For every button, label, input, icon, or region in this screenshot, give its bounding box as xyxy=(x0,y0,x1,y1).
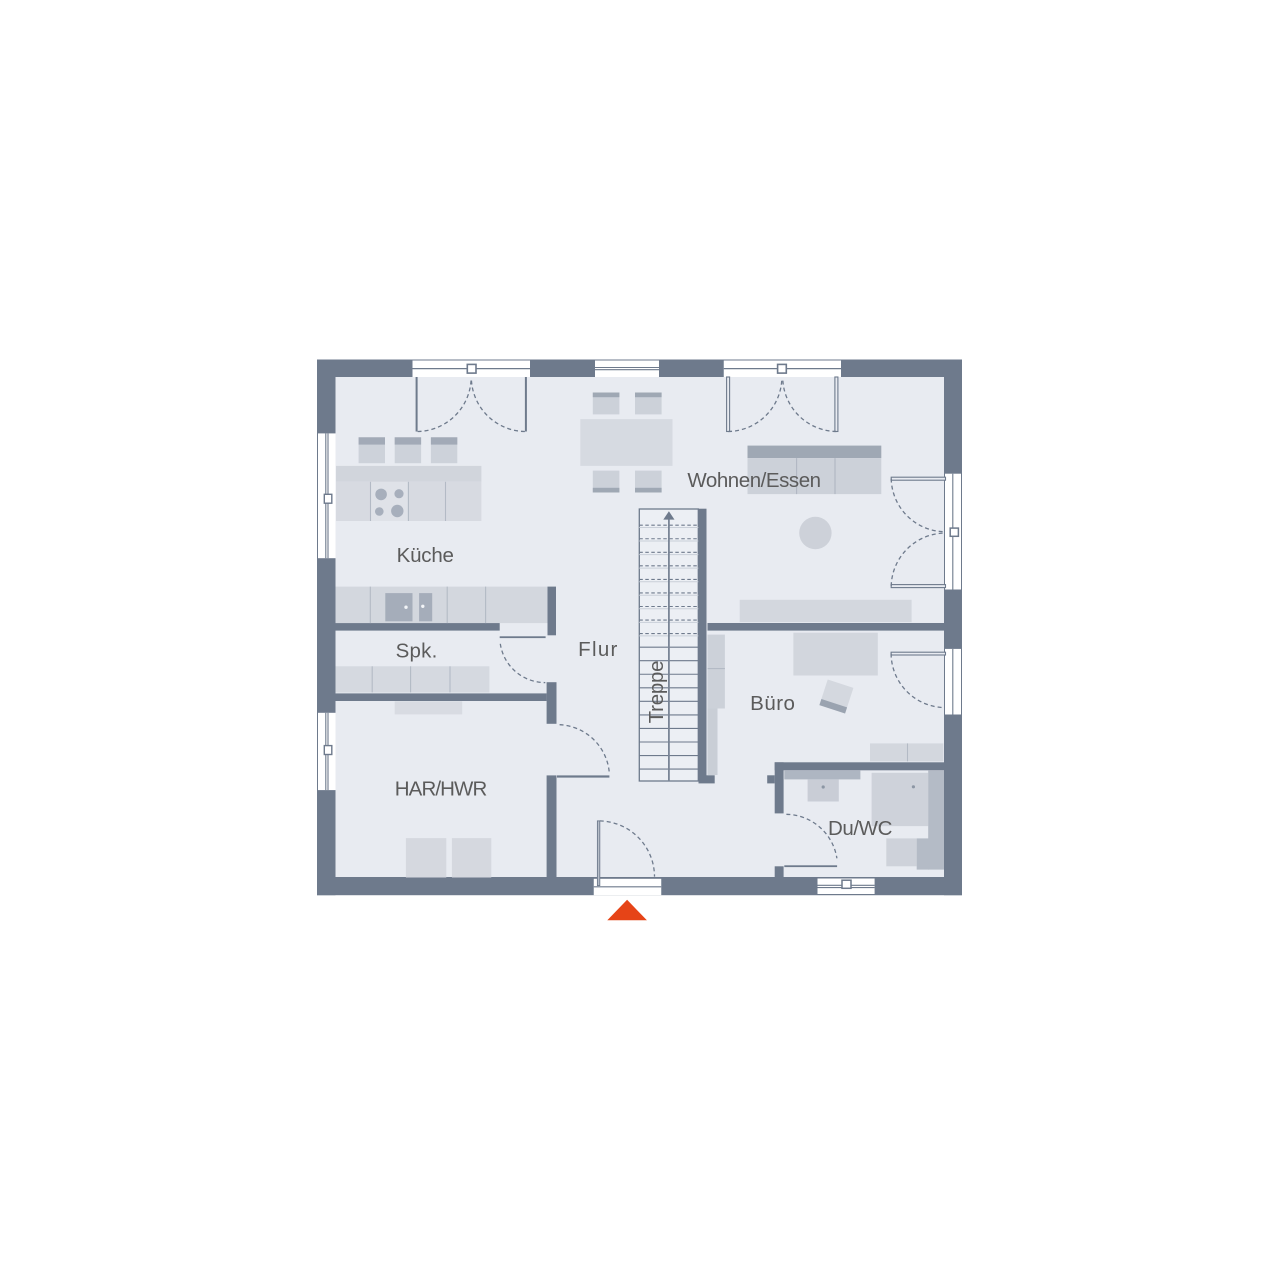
svg-text:Treppe: Treppe xyxy=(645,661,668,724)
svg-text:Wohnen/Essen: Wohnen/Essen xyxy=(687,469,820,492)
svg-text:Spk.: Spk. xyxy=(396,640,438,663)
svg-text:Büro: Büro xyxy=(750,692,795,715)
svg-text:HAR/HWR: HAR/HWR xyxy=(395,778,487,801)
svg-text:Du/WC: Du/WC xyxy=(828,817,893,840)
svg-text:Küche: Küche xyxy=(397,544,454,567)
svg-text:Flur: Flur xyxy=(578,638,619,661)
